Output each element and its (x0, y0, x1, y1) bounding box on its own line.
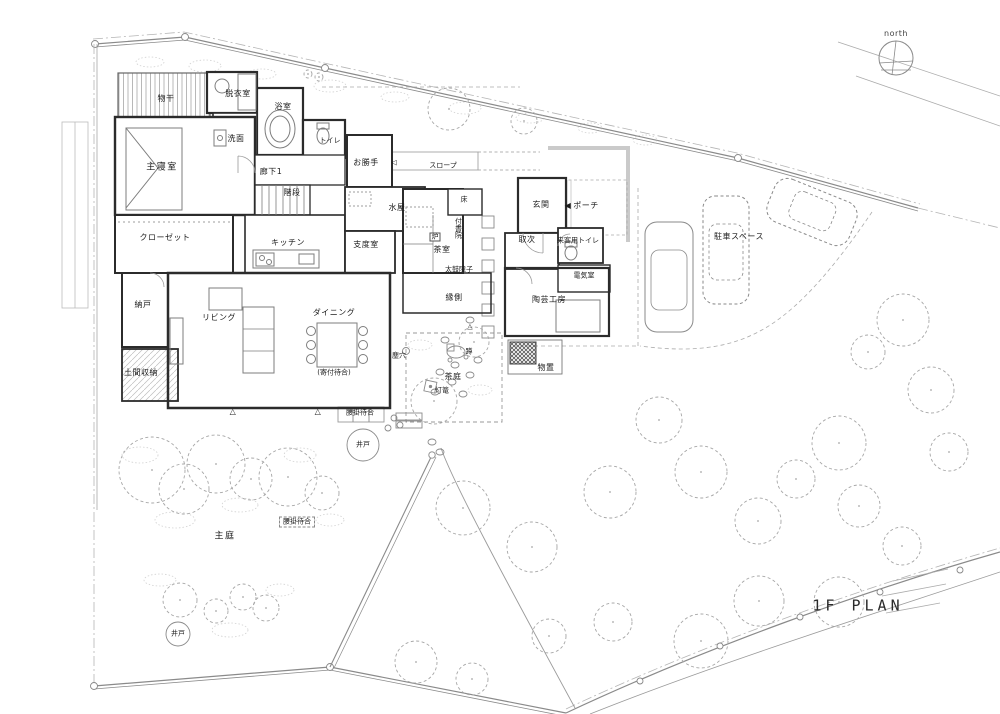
house-walls (115, 72, 610, 408)
tree-center-dot (757, 520, 759, 522)
tree-center-dot (215, 463, 217, 465)
tree-center-dot (179, 599, 181, 601)
tree-center-dot (858, 505, 860, 507)
tree-center-dot (448, 108, 450, 110)
tree-center-dot (795, 478, 797, 480)
tree-center-dot (307, 73, 309, 75)
tree-center-dot (901, 545, 903, 547)
north-arrow-icon (879, 41, 913, 75)
tree-center-dot (658, 419, 660, 421)
approach-path (406, 333, 575, 708)
parking-cars (645, 174, 861, 332)
tree-center-dot (867, 351, 869, 353)
tree-center-dot (242, 596, 244, 598)
tree-center-dot (609, 491, 611, 493)
tree-center-dot (531, 546, 533, 548)
tree-center-dot (318, 76, 320, 78)
tree-center-dot (612, 621, 614, 623)
tree-center-dot (265, 607, 267, 609)
tree-center-dot (215, 610, 217, 612)
tree-center-dot (838, 442, 840, 444)
tree-center-dot (321, 492, 323, 494)
tree-center-dot (902, 319, 904, 321)
neighbor-structure (62, 122, 88, 308)
tree-center-dot (462, 507, 464, 509)
floor-plan-drawing (0, 0, 1000, 714)
tree-center-dot (250, 478, 252, 480)
tree-center-dot (415, 661, 417, 663)
tree-center-dot (700, 640, 702, 642)
tree-center-dot (548, 635, 550, 637)
tree-center-dot (183, 488, 185, 490)
tree-center-dot (523, 120, 525, 122)
tree-center-dot (700, 471, 702, 473)
tree-center-dot (838, 601, 840, 603)
tree-center-dot (471, 678, 473, 680)
tree-center-dot (758, 600, 760, 602)
floor-plan-page: north物干脱衣室浴室洗面トイレ主寝室廊下1階段お勝手◁スロープクローゼットキ… (0, 0, 1000, 714)
tree-center-dot (948, 451, 950, 453)
tree-center-dot (433, 400, 435, 402)
garden-elements (166, 216, 494, 646)
tree-center-dot (473, 341, 475, 343)
tree-center-dot (287, 476, 289, 478)
tree-center-dot (151, 469, 153, 471)
tree-center-dot (930, 389, 932, 391)
